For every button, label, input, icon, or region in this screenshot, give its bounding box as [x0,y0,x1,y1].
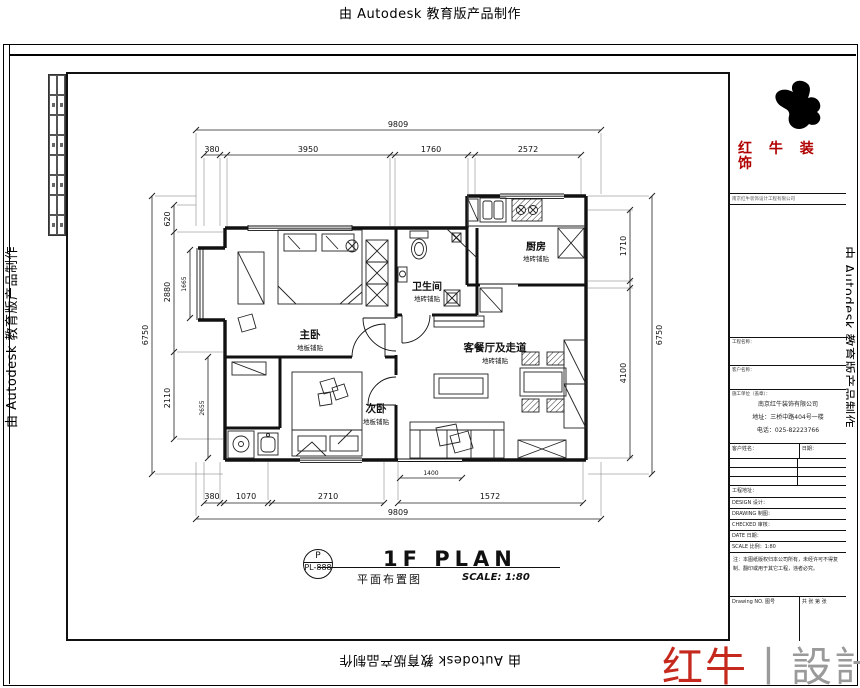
top-thick-rule [9,54,856,56]
logo-panel: 红 牛 装 饰 [730,72,846,194]
dim-label-inner: 1400 [423,470,438,477]
dim-label: 620 [163,211,172,226]
dim-label: 2710 [318,492,338,501]
watermark-right: 由 Autodesk 教育版产品制作 [845,222,859,452]
utility-furniture [228,431,278,458]
dim-label: 1572 [480,492,500,501]
footer-brand-gray: 設計 [791,643,860,688]
row-date2: DATE 日期： [730,531,846,542]
brand-name-line2: 饰 [730,157,846,172]
room-finish: 地砖铺贴 [523,254,550,263]
design-label: DESIGN 设计： [730,498,846,507]
sheet-title: 1F PLAN [383,547,517,571]
second-bedroom-furniture [232,362,362,456]
dim-label: 2880 [163,282,172,302]
bull-logo-icon [753,78,823,142]
living-dining-furniture [410,316,586,458]
row-empty [730,468,846,477]
row-checked: CHECKED 审核： [730,520,846,531]
checked-label: CHECKED 审核： [730,520,846,529]
date2-label: DATE 日期： [730,531,846,540]
door-symbols [352,315,430,405]
dim-label: 1070 [236,492,256,501]
master-bedroom-furniture [238,230,388,332]
row-empty [730,477,846,486]
watermark-bottom: 由 Autodesk 教育版产品制作 [339,652,521,671]
watermark-top: 由 Autodesk 教育版产品制作 [339,3,521,22]
company-name: 南京红牛装饰有限公司 [730,398,846,411]
footer-brand-red: 红牛 [662,643,748,688]
room-finish: 地砖铺贴 [482,356,509,365]
copyright-note: 注：本图纸版权归本公司所有，未经许可不得复制、翻印或用于其它工程，违者必究。 [730,553,846,597]
brand-small-text: 南京红牛装饰设计工程有限公司 [730,194,846,205]
dim-label: 9809 [388,120,408,129]
field-project-label: 工程名称： [730,338,846,346]
row-address: 工程地址： [730,486,846,498]
dim-label: 4100 [619,363,628,383]
scale-label: SCALE 比例：1:80 [730,542,846,551]
drawing-label: DRAWING 制图： [730,509,846,518]
field-client: 客户名称： [730,366,846,390]
client-name-label: 客户姓名： [730,444,799,458]
watermark-left: 由 Autodesk 教育版产品制作 [1,222,15,452]
address-label: 工程地址： [730,486,846,495]
row-drawing: DRAWING 制图： [730,509,846,520]
drawing-sheet: 由 Autodesk 教育版产品制作 由 Autodesk 教育版产品制作 由 … [0,0,860,688]
dim-label: 9809 [388,508,408,517]
drawing-stamp: P PL-888 [303,549,333,579]
titleblock-empty-panel [730,205,846,338]
row-empty [730,459,846,468]
field-project: 工程名称： [730,338,846,366]
room-finish: 地砖铺贴 [414,294,441,303]
row-scale: SCALE 比例：1:80 [730,542,846,553]
furniture [228,198,586,458]
date-label: 日期： [799,444,846,458]
company-phone: 电话：025-82223766 [730,424,846,437]
row-design: DESIGN 设计： [730,498,846,509]
dim-label: 6750 [655,325,664,345]
dim-label-inner: 2655 [199,400,206,415]
sheet-title-cn: 平面布置图 [357,571,422,587]
room-finish: 地板铺贴 [363,417,390,426]
dim-label-inner: 1665 [181,276,188,291]
dim-label: 380 [204,492,219,501]
dim-label: 2110 [163,388,172,408]
field-client-label: 客户名称： [730,366,846,374]
company-header: 施工单位（盖章）： [730,390,846,398]
room-name: 次卧 [366,402,387,415]
calibration-strip [48,74,66,236]
room-name: 卫生间 [412,280,442,293]
dim-label: 2572 [518,145,538,154]
company-panel: 施工单位（盖章）： 南京红牛装饰有限公司 地址：三桥中路404号一楼 电话：02… [730,390,846,444]
stamp-letter: P [304,550,332,562]
room-name: 厨房 [526,240,546,253]
footer-brand-divider: 丨 [748,643,791,688]
title-block: 红 牛 装 饰 南京红牛装饰设计工程有限公司 工程名称： 客户名称： 施工单位（… [728,72,846,641]
dim-label: 1710 [619,236,628,256]
room-name: 主卧 [300,328,321,341]
dim-label: 6750 [141,325,150,345]
sheet-scale: SCALE: 1:80 [462,572,530,583]
dim-label: 1760 [421,145,441,154]
row-client-date: 客户姓名： 日期： [730,444,846,459]
room-name: 客餐厅及走道 [463,341,527,354]
footer-brand: 红牛丨設計 [662,633,860,688]
company-address: 地址：三桥中路404号一楼 [730,411,846,424]
room-finish: 地板铺贴 [297,343,324,352]
dim-label: 380 [204,145,219,154]
brand-name-line1: 红 牛 装 [730,142,846,157]
dim-label: 3950 [298,145,318,154]
